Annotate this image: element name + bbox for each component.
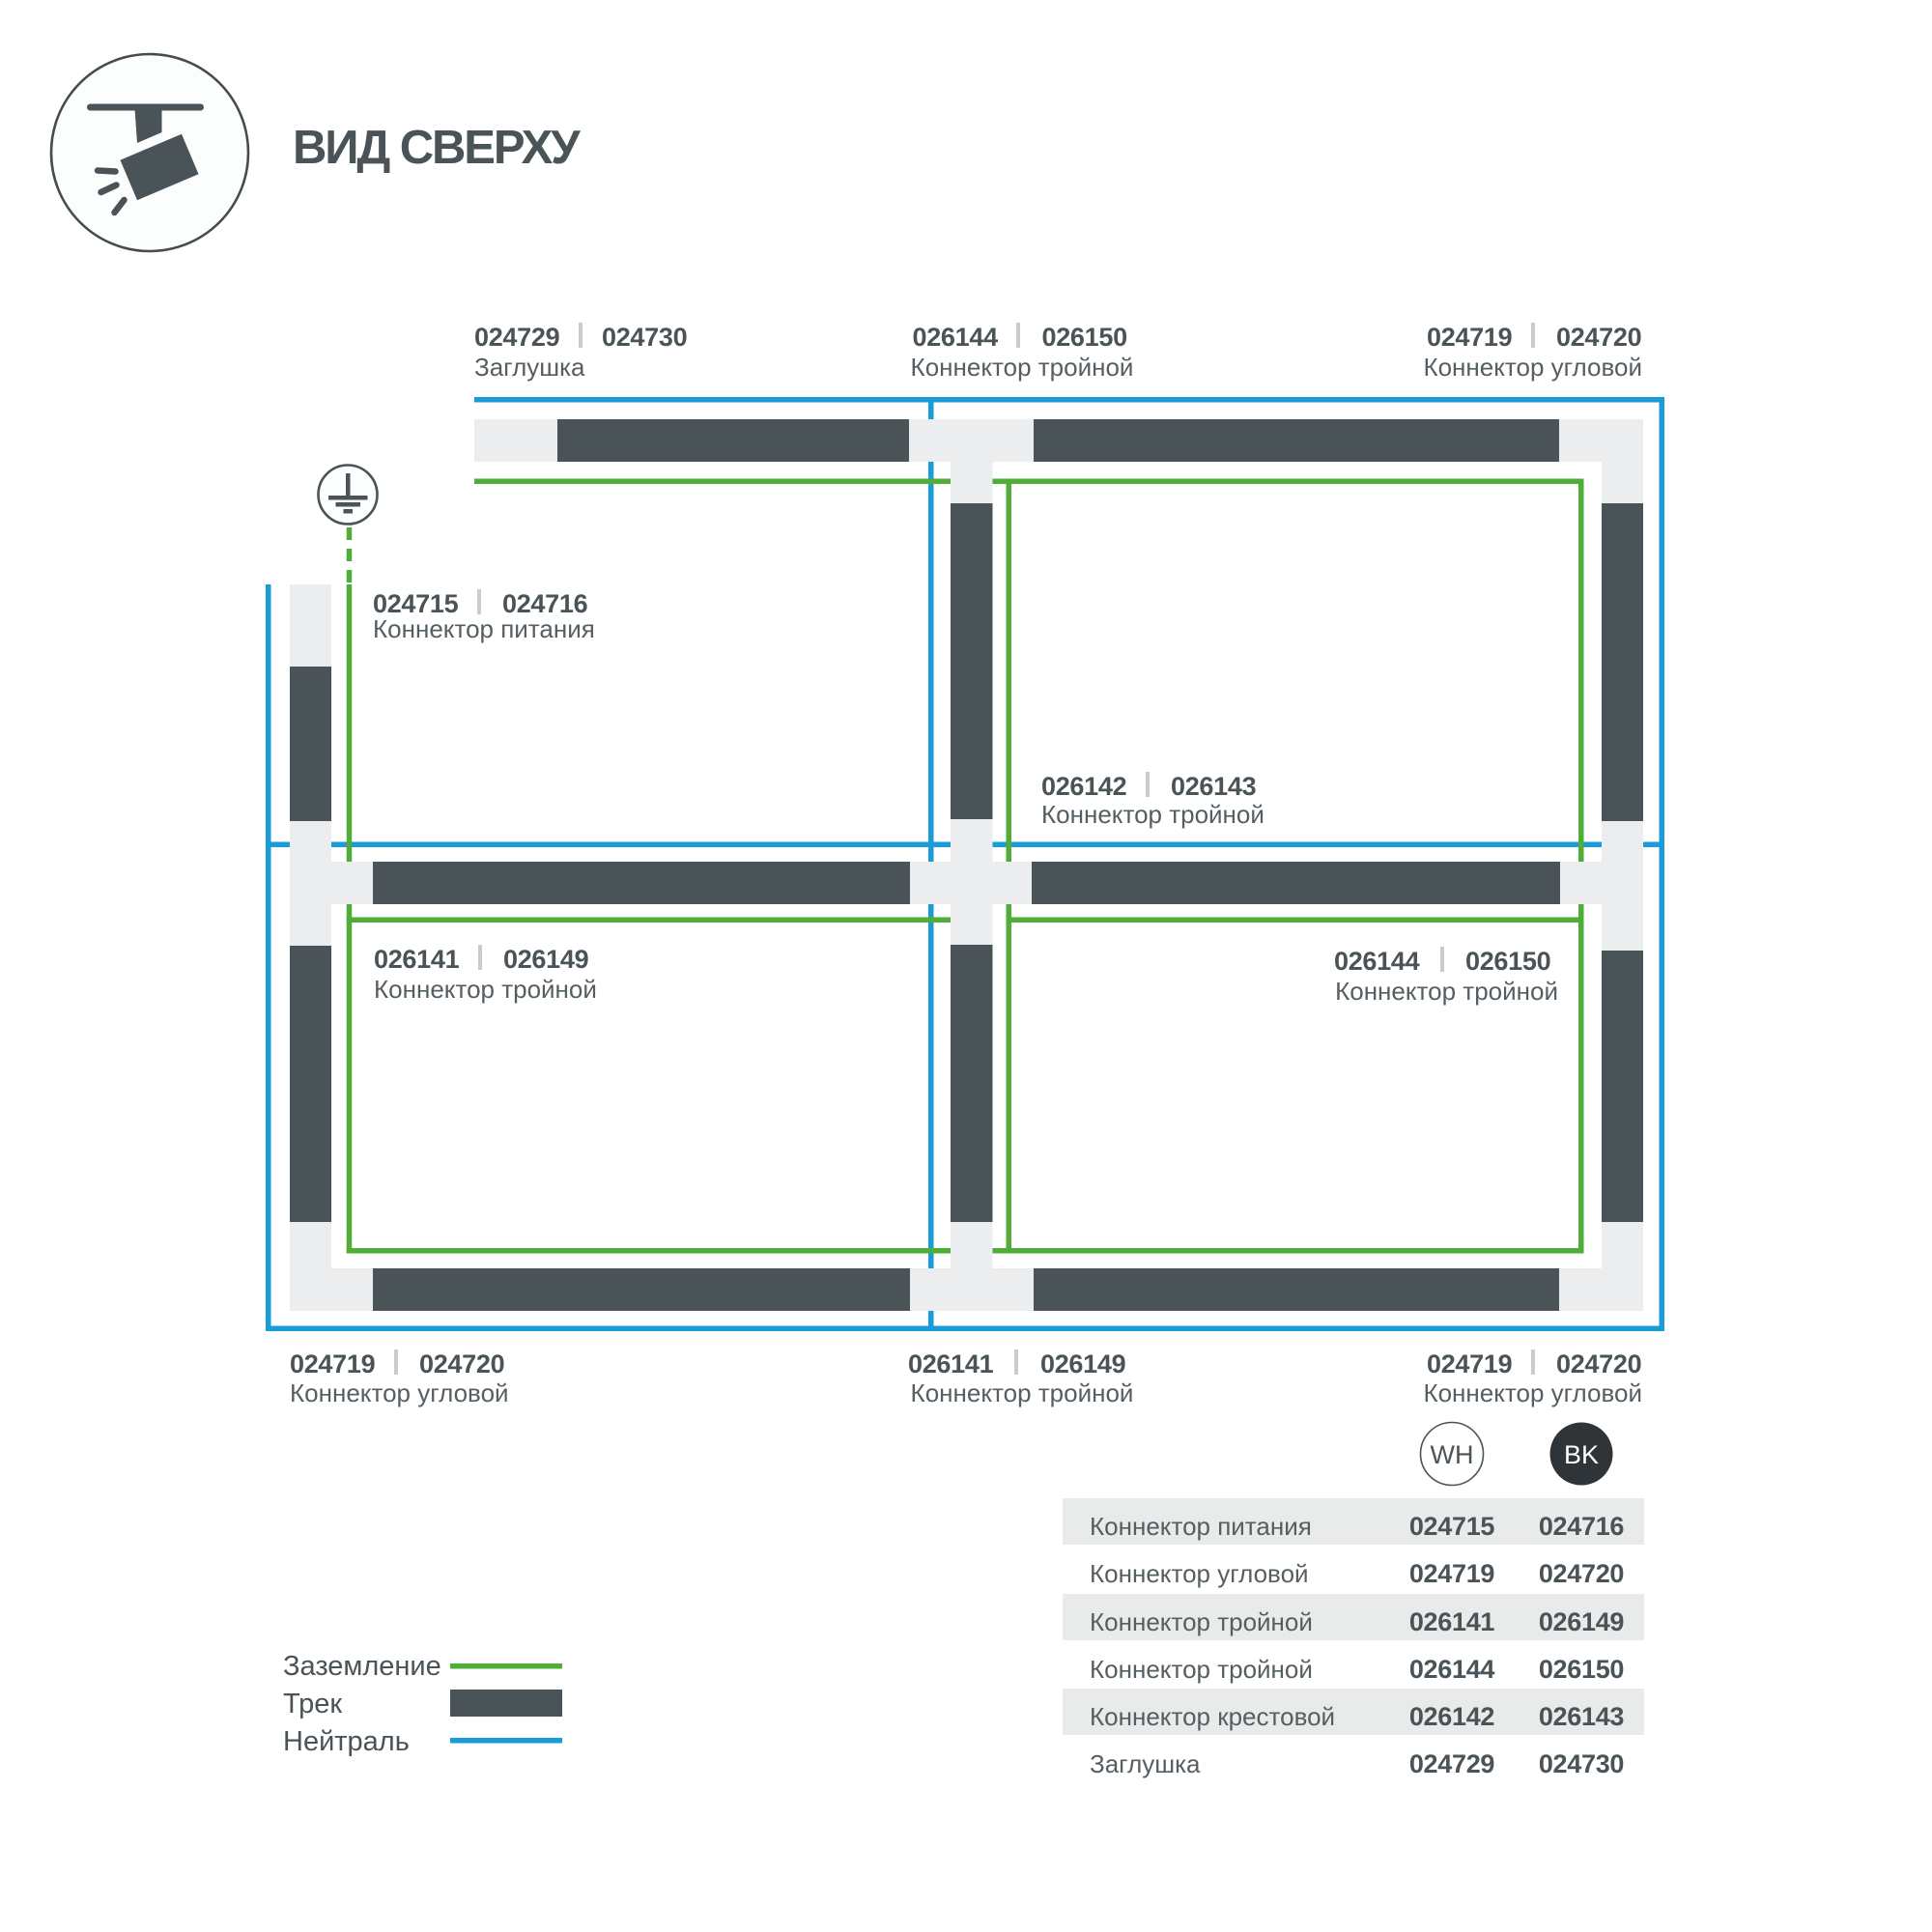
svg-text:Коннектор тройной: Коннектор тройной [911, 353, 1134, 382]
svg-text:Заглушка: Заглушка [474, 353, 585, 382]
svg-text:024720: 024720 [1539, 1559, 1624, 1588]
svg-text:Коннектор угловой: Коннектор угловой [1423, 1378, 1642, 1407]
svg-text:026144: 026144 [1409, 1655, 1495, 1684]
svg-text:Нейтраль: Нейтраль [283, 1726, 410, 1757]
svg-text:026149: 026149 [1539, 1607, 1625, 1636]
svg-text:024729: 024729 [474, 323, 560, 352]
svg-text:024730: 024730 [602, 323, 687, 352]
svg-text:Коннектор тройной: Коннектор тройной [374, 975, 597, 1004]
svg-text:026142: 026142 [1041, 772, 1126, 801]
svg-text:WH: WH [1431, 1440, 1474, 1469]
svg-text:024719: 024719 [1409, 1559, 1495, 1588]
svg-text:Заглушка: Заглушка [1090, 1749, 1201, 1778]
svg-text:Коннектор тройной: Коннектор тройной [1041, 800, 1264, 829]
svg-text:Коннектор крестовой: Коннектор крестовой [1090, 1702, 1335, 1731]
svg-text:026143: 026143 [1171, 772, 1257, 801]
svg-text:Заземление: Заземление [283, 1651, 441, 1682]
svg-text:026141: 026141 [908, 1350, 994, 1378]
svg-text:026149: 026149 [503, 945, 589, 974]
svg-text:Коннектор тройной: Коннектор тройной [1090, 1655, 1313, 1684]
svg-text:Коннектор тройной: Коннектор тройной [1335, 977, 1558, 1006]
svg-text:024719: 024719 [1427, 1350, 1513, 1378]
svg-text:026149: 026149 [1040, 1350, 1126, 1378]
svg-text:024719: 024719 [290, 1350, 376, 1378]
svg-text:Трек: Трек [283, 1689, 342, 1719]
svg-text:026150: 026150 [1465, 947, 1550, 976]
svg-text:Коннектор тройной: Коннектор тройной [1090, 1607, 1313, 1636]
svg-text:026144: 026144 [913, 323, 999, 352]
svg-text:026144: 026144 [1334, 947, 1420, 976]
svg-text:024716: 024716 [1539, 1512, 1625, 1541]
svg-text:024730: 024730 [1539, 1749, 1624, 1778]
svg-text:026142: 026142 [1409, 1702, 1494, 1731]
svg-text:Коннектор угловой: Коннектор угловой [290, 1378, 509, 1407]
svg-text:ВИД СВЕРХУ: ВИД СВЕРХУ [293, 122, 581, 174]
svg-text:024719: 024719 [1427, 323, 1513, 352]
svg-text:Коннектор питания: Коннектор питания [1090, 1512, 1312, 1541]
svg-text:026143: 026143 [1539, 1702, 1625, 1731]
svg-text:Коннектор угловой: Коннектор угловой [1423, 353, 1642, 382]
svg-text:024720: 024720 [1556, 323, 1641, 352]
svg-text:Коннектор угловой: Коннектор угловой [1090, 1559, 1309, 1588]
svg-text:BK: BK [1564, 1440, 1599, 1469]
svg-text:Коннектор тройной: Коннектор тройной [911, 1378, 1134, 1407]
svg-text:026150: 026150 [1539, 1655, 1624, 1684]
svg-text:026141: 026141 [374, 945, 460, 974]
svg-text:024729: 024729 [1409, 1749, 1495, 1778]
svg-text:Коннектор питания: Коннектор питания [373, 614, 595, 643]
svg-text:026150: 026150 [1042, 323, 1127, 352]
svg-text:024715: 024715 [1409, 1512, 1495, 1541]
svg-text:024720: 024720 [419, 1350, 504, 1378]
svg-text:026141: 026141 [1409, 1607, 1495, 1636]
svg-text:024720: 024720 [1556, 1350, 1641, 1378]
